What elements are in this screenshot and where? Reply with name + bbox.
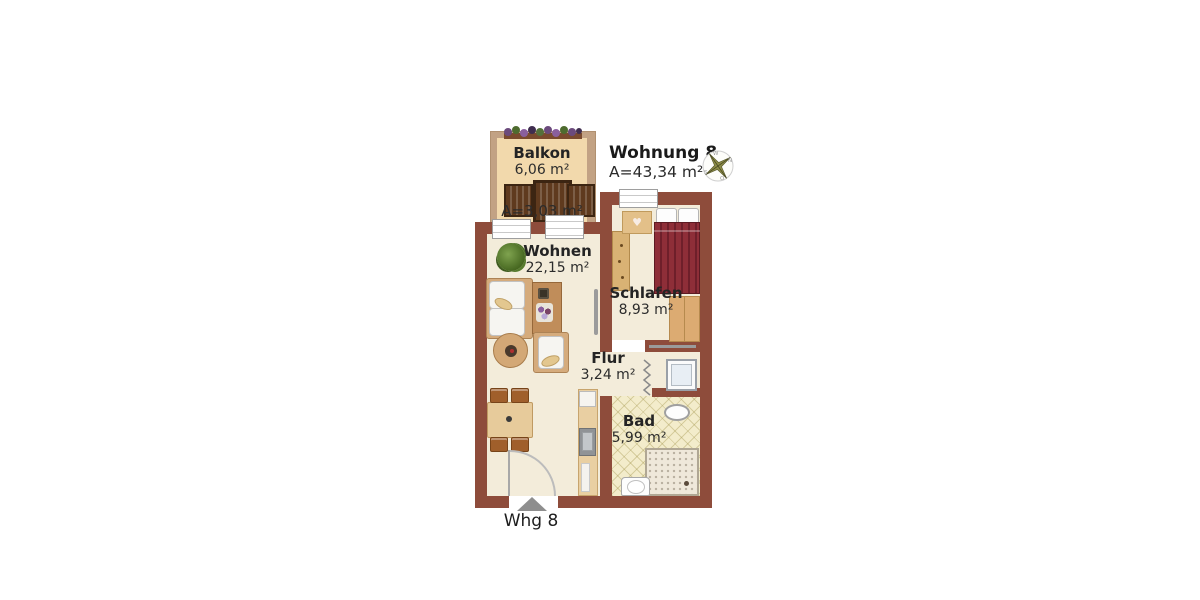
balcony-label: Balkon 6,06 m² <box>497 145 587 178</box>
dining-chair-icon <box>511 388 529 403</box>
flower-box-icon <box>500 125 586 141</box>
bathroom-name: Bad <box>607 413 671 430</box>
svg-text:W: W <box>713 151 719 157</box>
kitchen-cabinet-icon <box>579 391 596 407</box>
flower-vase-icon <box>536 303 553 322</box>
living-room-label: Wohnen 22,15 m² <box>515 243 600 276</box>
svg-text:O: O <box>720 176 725 182</box>
wall-left <box>475 222 487 508</box>
entrance-label: Whg 8 <box>494 512 568 532</box>
toilet-bowl <box>627 480 645 494</box>
radiator-icon <box>594 289 598 335</box>
living-room-area: 22,15 m² <box>515 260 600 276</box>
kitchen-sink-basin <box>582 432 593 451</box>
wardrobe-icon <box>612 231 630 291</box>
balcony-door-icon <box>545 215 584 239</box>
dining-table-decor <box>506 416 512 422</box>
shower-icon <box>645 448 699 496</box>
hallway-label: Flur 3,24 m² <box>577 350 639 383</box>
nightstand-icon: ♥ <box>622 211 652 234</box>
bowl-decor <box>510 349 514 353</box>
dining-chair-icon <box>490 388 508 403</box>
heart-icon: ♥ <box>632 216 642 229</box>
kitchen-cabinet-door <box>581 463 590 492</box>
living-room-name: Wohnen <box>515 243 600 260</box>
dining-chair-icon <box>490 437 508 452</box>
floor-plan-canvas: Balkon 6,06 m² A=3,03 m² <box>0 0 1200 600</box>
bedroom-window-icon <box>619 189 658 208</box>
bedroom-door-threshold <box>649 345 696 348</box>
hallway-area: 3,24 m² <box>577 367 639 383</box>
bedroom-name: Schlafen <box>606 285 686 302</box>
wall-right <box>700 192 712 508</box>
bathroom-area: 5,99 m² <box>607 430 671 446</box>
balcony-window-icon <box>492 219 531 239</box>
washing-machine-door <box>671 364 692 386</box>
entrance-arrow-icon <box>517 497 547 511</box>
wall-living-bedroom <box>600 204 612 352</box>
balcony-area: 6,06 m² <box>497 162 587 178</box>
bedroom-label: Schlafen 8,93 m² <box>606 285 686 318</box>
bedroom-area: 8,93 m² <box>606 302 686 318</box>
compass-icon: W N O S <box>699 147 737 185</box>
shower-drain <box>684 481 689 486</box>
svg-text:S: S <box>704 170 708 176</box>
balcony-name: Balkon <box>497 145 587 162</box>
coat-hooks-icon <box>641 360 653 398</box>
table-decor-icon <box>538 288 549 299</box>
svg-text:N: N <box>728 158 732 164</box>
bed-fold <box>654 230 700 232</box>
bathroom-label: Bad 5,99 m² <box>607 413 671 446</box>
sofa-cushion <box>489 308 525 336</box>
hallway-name: Flur <box>577 350 639 367</box>
